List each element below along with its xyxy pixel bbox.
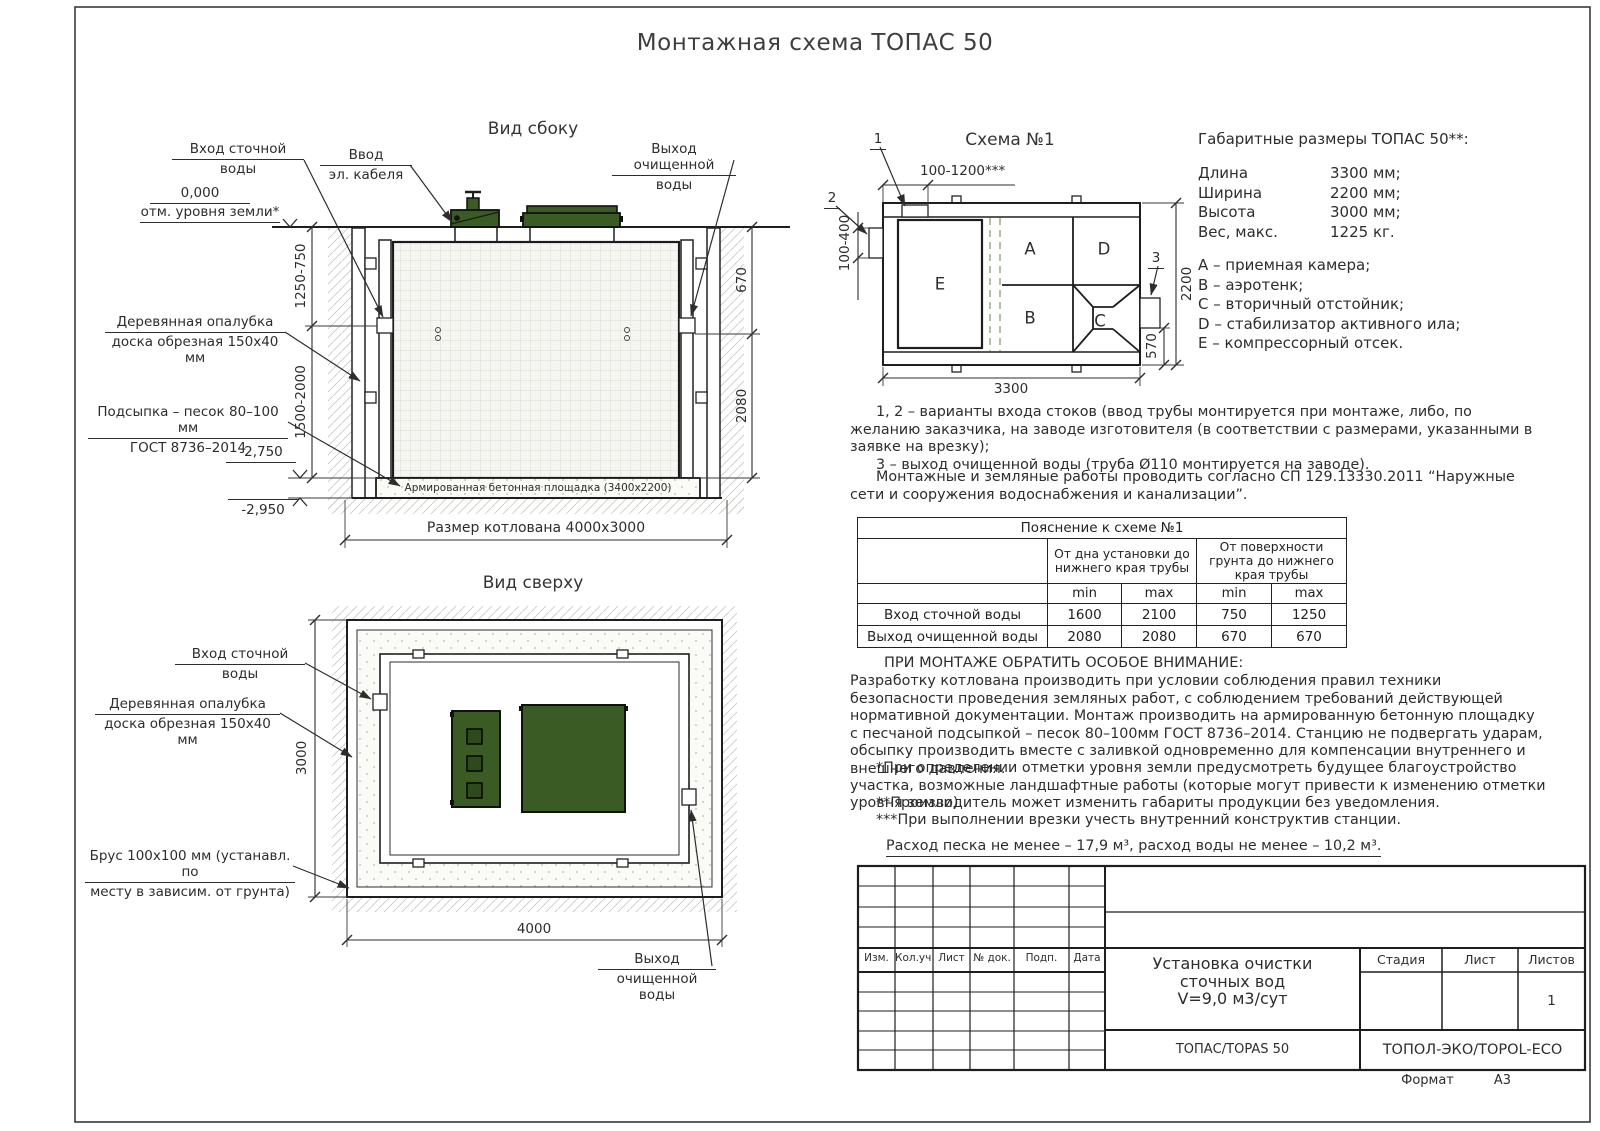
attention-heading: ПРИ МОНТАЖЕ ОБРАТИТЬ ОСОБОЕ ВНИМАНИЕ: [884,655,1243,671]
dim-inlet-offset: 100-1200*** [920,163,1005,179]
row-value: 1600 [1048,604,1122,626]
dim-2200: 2200 [1179,267,1195,301]
row-value: 2080 [1122,626,1197,648]
side-inlet-label: Вход сточной воды [172,141,304,177]
row-value: 2080 [1048,626,1122,648]
format-label: Формат [1385,1073,1470,1088]
dim-670: 670 [734,267,750,293]
dim-depth-upper: 1250-750 [293,244,309,309]
beam-label: Брус 100х100 мм (устанавл. по месту в за… [85,848,295,900]
attention-note-2: **Производитель может изменить габариты … [850,795,1546,813]
stamp-col-list: Лист [933,952,970,964]
stage-label: Стадия [1360,948,1442,972]
dim-inlet-height: 100-400 [837,215,853,271]
soil-hatch-bottom [328,498,744,514]
dim-value: 3000 мм; [1330,203,1401,221]
compartment-E: E [935,275,945,294]
dim-570: 570 [1144,333,1160,359]
product-name: ТОПАС/TOPAS 50 [1105,1030,1360,1070]
scheme1-title: Схема №1 [930,130,1090,150]
legend-item: B – аэротенк; [1198,276,1460,296]
side-outlet-label: Выход очищенной воды [612,141,736,193]
side-inlet-label-line1: Вход сточной [172,141,304,160]
row-value: 2100 [1122,604,1197,626]
top-outlet-label: Выход очищенной воды [598,951,716,1003]
side-outlet-label-line1: Выход очищенной [612,141,736,176]
compartment-B: B [1024,309,1035,328]
table-subheader: max [1272,584,1347,604]
side-view-title: Вид сбоку [433,119,633,139]
compartment-C: C [1094,312,1106,331]
formwork-top-line1: Деревянная опалубка [95,696,280,715]
wall-cleat [696,392,707,403]
cable-entry-label-line1: Ввод [320,147,412,166]
wall-cleat [365,258,376,269]
dim-4000: 4000 [494,921,574,937]
stamp-col-data: Дата [1069,952,1105,964]
sp-regulation-note: Монтажные и земляные работы проводить со… [850,469,1540,504]
row-label: Выход очищенной воды [858,626,1048,648]
row-value: 670 [1272,626,1347,648]
sheets-label: Листов [1518,948,1585,972]
dimension-row: Ширина2200 мм; [1198,184,1401,204]
cable-entry-label-line2: эл. кабеля [320,166,412,183]
formwork-wall-right-outer [707,228,720,498]
inlet-pipe-stub [377,318,393,333]
dim-value: 3300 мм; [1330,164,1401,182]
compressor-hatch-top [450,711,500,807]
dim-value: 2200 мм; [1330,184,1401,202]
legend-item: C – вторичный отстойник; [1198,295,1460,315]
drawing-sheet: .s2 { stroke:#1e1e1e; stroke-width:2; fi… [0,0,1600,1131]
outlet-pipe-stub-top [682,789,696,805]
sheet-label: Лист [1442,948,1518,972]
explanation-table: Пояснение к схеме №1 От дна установки до… [857,517,1347,648]
dim-label: Высота [1198,203,1330,223]
consumption-note-text: Расход песка не менее – 17,9 м³, расход … [886,838,1381,857]
callout-1: 1 [870,131,886,150]
compartment-legend: A – приемная камера; B – аэротенк; C – в… [1198,256,1460,354]
concrete-slab-label: Армированная бетонная площадка (3400х220… [388,482,688,494]
top-view-title: Вид сверху [433,573,633,593]
dim-value: 1225 кг. [1330,223,1395,241]
table-group-header: От дна установки до нижнего края трубы [1048,539,1197,584]
formwork-wall-right-inner [681,240,693,478]
row-value: 750 [1197,604,1272,626]
stamp-col-podp: Подп. [1014,952,1069,964]
note-variants-1: 1, 2 – варианты входа стоков (ввод трубы… [850,404,1540,457]
stamp-col-koluch: Кол.уч. [895,952,933,964]
scheme-inlet-2 [869,228,883,258]
table-row: Выход очищенной воды 2080 2080 670 670 [858,626,1347,648]
consumption-note: Расход песка не менее – 17,9 м³, расход … [886,838,1381,856]
table-group-header: От поверхности грунта до нижнего края тр… [1197,539,1347,584]
doc-title-line2: сточных вод [1105,973,1360,991]
company-name: ТОПОЛ-ЭКО/TOPOL-ECO [1360,1030,1585,1070]
top-view-drawing [280,606,737,966]
dim-depth-lower: 1500-2000 [293,365,309,439]
row-value: 670 [1197,626,1272,648]
page-title: Монтажная схема ТОПАС 50 [565,30,1065,56]
elevation-2750-value: -2,750 [226,444,296,463]
doc-title-line1: Установка очистки [1105,955,1360,973]
legend-item: E – компрессорный отсек. [1198,334,1460,354]
formwork-label-line2: доска обрезная 150х40 мм [105,333,285,366]
inlet-pipe-stub-top [373,694,387,710]
dimension-row: Высота3000 мм; [1198,203,1401,223]
row-value: 1250 [1272,604,1347,626]
elevation-2750: -2,750 [226,444,296,463]
callout-2-number: 2 [824,190,840,209]
table-subheader: min [1048,584,1122,604]
cable-entry-label: Ввод эл. кабеля [320,147,412,183]
zero-level-mark: 0,000 [150,185,250,204]
elevation-2950: -2,950 [228,499,298,518]
formwork-label-top: Деревянная опалубка доска обрезная 150х4… [95,696,280,748]
compartment-A: A [1024,240,1035,259]
scheme-inlet-1 [902,205,928,217]
stamp-col-izm: Изм. [858,952,895,964]
callout-3-number: 3 [1148,250,1164,269]
top-inlet-label-line2: воды [175,665,305,682]
dim-3000: 3000 [294,741,310,775]
dim-3300: 3300 [971,381,1051,397]
zero-level-value: 0,000 [150,185,250,204]
table-subheader: min [1197,584,1272,604]
scheme-outlet-3 [1140,298,1160,328]
side-outlet-label-line2: воды [612,176,736,193]
pit-size-label: Размер котлована 4000х3000 [380,520,692,536]
stamp-col-dok: № док. [970,952,1014,964]
overall-dimensions-title: Габаритные размеры ТОПАС 50**: [1198,130,1469,148]
dim-label: Ширина [1198,184,1330,204]
formwork-wall-left-inner [379,240,391,478]
sand-bedding-line1: Подсыпка – песок 80–100 мм [88,404,288,439]
main-hatch-top [519,705,628,812]
overall-dimensions-list: Длина3300 мм; Ширина2200 мм; Высота3000 … [1198,164,1401,242]
callout-1-number: 1 [870,131,886,150]
top-inlet-label: Вход сточной воды [175,646,305,682]
dim-2080: 2080 [734,389,750,423]
tank-body [393,242,679,478]
table-row: Вход сточной воды 1600 2100 750 1250 [858,604,1347,626]
formwork-top-line2: доска обрезная 150х40 мм [95,715,280,748]
callout-2: 2 [824,190,840,209]
soil-hatch-left [328,227,352,514]
main-lid [520,206,623,227]
beam-label-line1: Брус 100х100 мм (устанавл. по [85,848,295,883]
dimension-row: Вес, макс.1225 кг. [1198,223,1401,243]
table-corner-cell [858,539,1048,584]
legend-item: A – приемная камера; [1198,256,1460,276]
table-corner-cell [858,584,1048,604]
attention-note-3: ***При выполнении врезки учесть внутренн… [850,812,1546,830]
formwork-label-line1: Деревянная опалубка [105,314,285,333]
side-inlet-label-line2: воды [172,160,304,177]
ground-level-text: отм. уровня земли* [140,204,280,223]
format-value: А3 [1470,1073,1535,1088]
compressor-lid [451,192,499,227]
stamp-doc-title: Установка очистки сточных вод V=9,0 м3/с… [1105,955,1360,1008]
top-outlet-line2: очищенной воды [598,970,716,1003]
top-inlet-label-line1: Вход сточной [175,646,305,665]
beam-label-line2: месту в зависим. от грунта) [85,883,295,900]
dim-label: Длина [1198,164,1330,184]
scheme1-drawing [836,147,1184,386]
top-outlet-line1: Выход [598,951,716,970]
ground-level-label: отм. уровня земли* [140,204,280,223]
dim-label: Вес, макс. [1198,223,1330,243]
row-label: Вход сточной воды [858,604,1048,626]
outlet-pipe-stub [679,318,695,333]
dimension-row: Длина3300 мм; [1198,164,1401,184]
formwork-label-side: Деревянная опалубка доска обрезная 150х4… [105,314,285,366]
table-title: Пояснение к схеме №1 [858,518,1347,539]
wall-cleat [365,392,376,403]
doc-title-line3: V=9,0 м3/сут [1105,990,1360,1008]
table-subheader: max [1122,584,1197,604]
inlet-variants-note: 1, 2 – варианты входа стоков (ввод трубы… [850,404,1540,474]
compartment-D: D [1098,240,1111,259]
legend-item: D – стабилизатор активного ила; [1198,315,1460,335]
sheets-value: 1 [1518,972,1585,1030]
callout-3: 3 [1148,250,1164,269]
